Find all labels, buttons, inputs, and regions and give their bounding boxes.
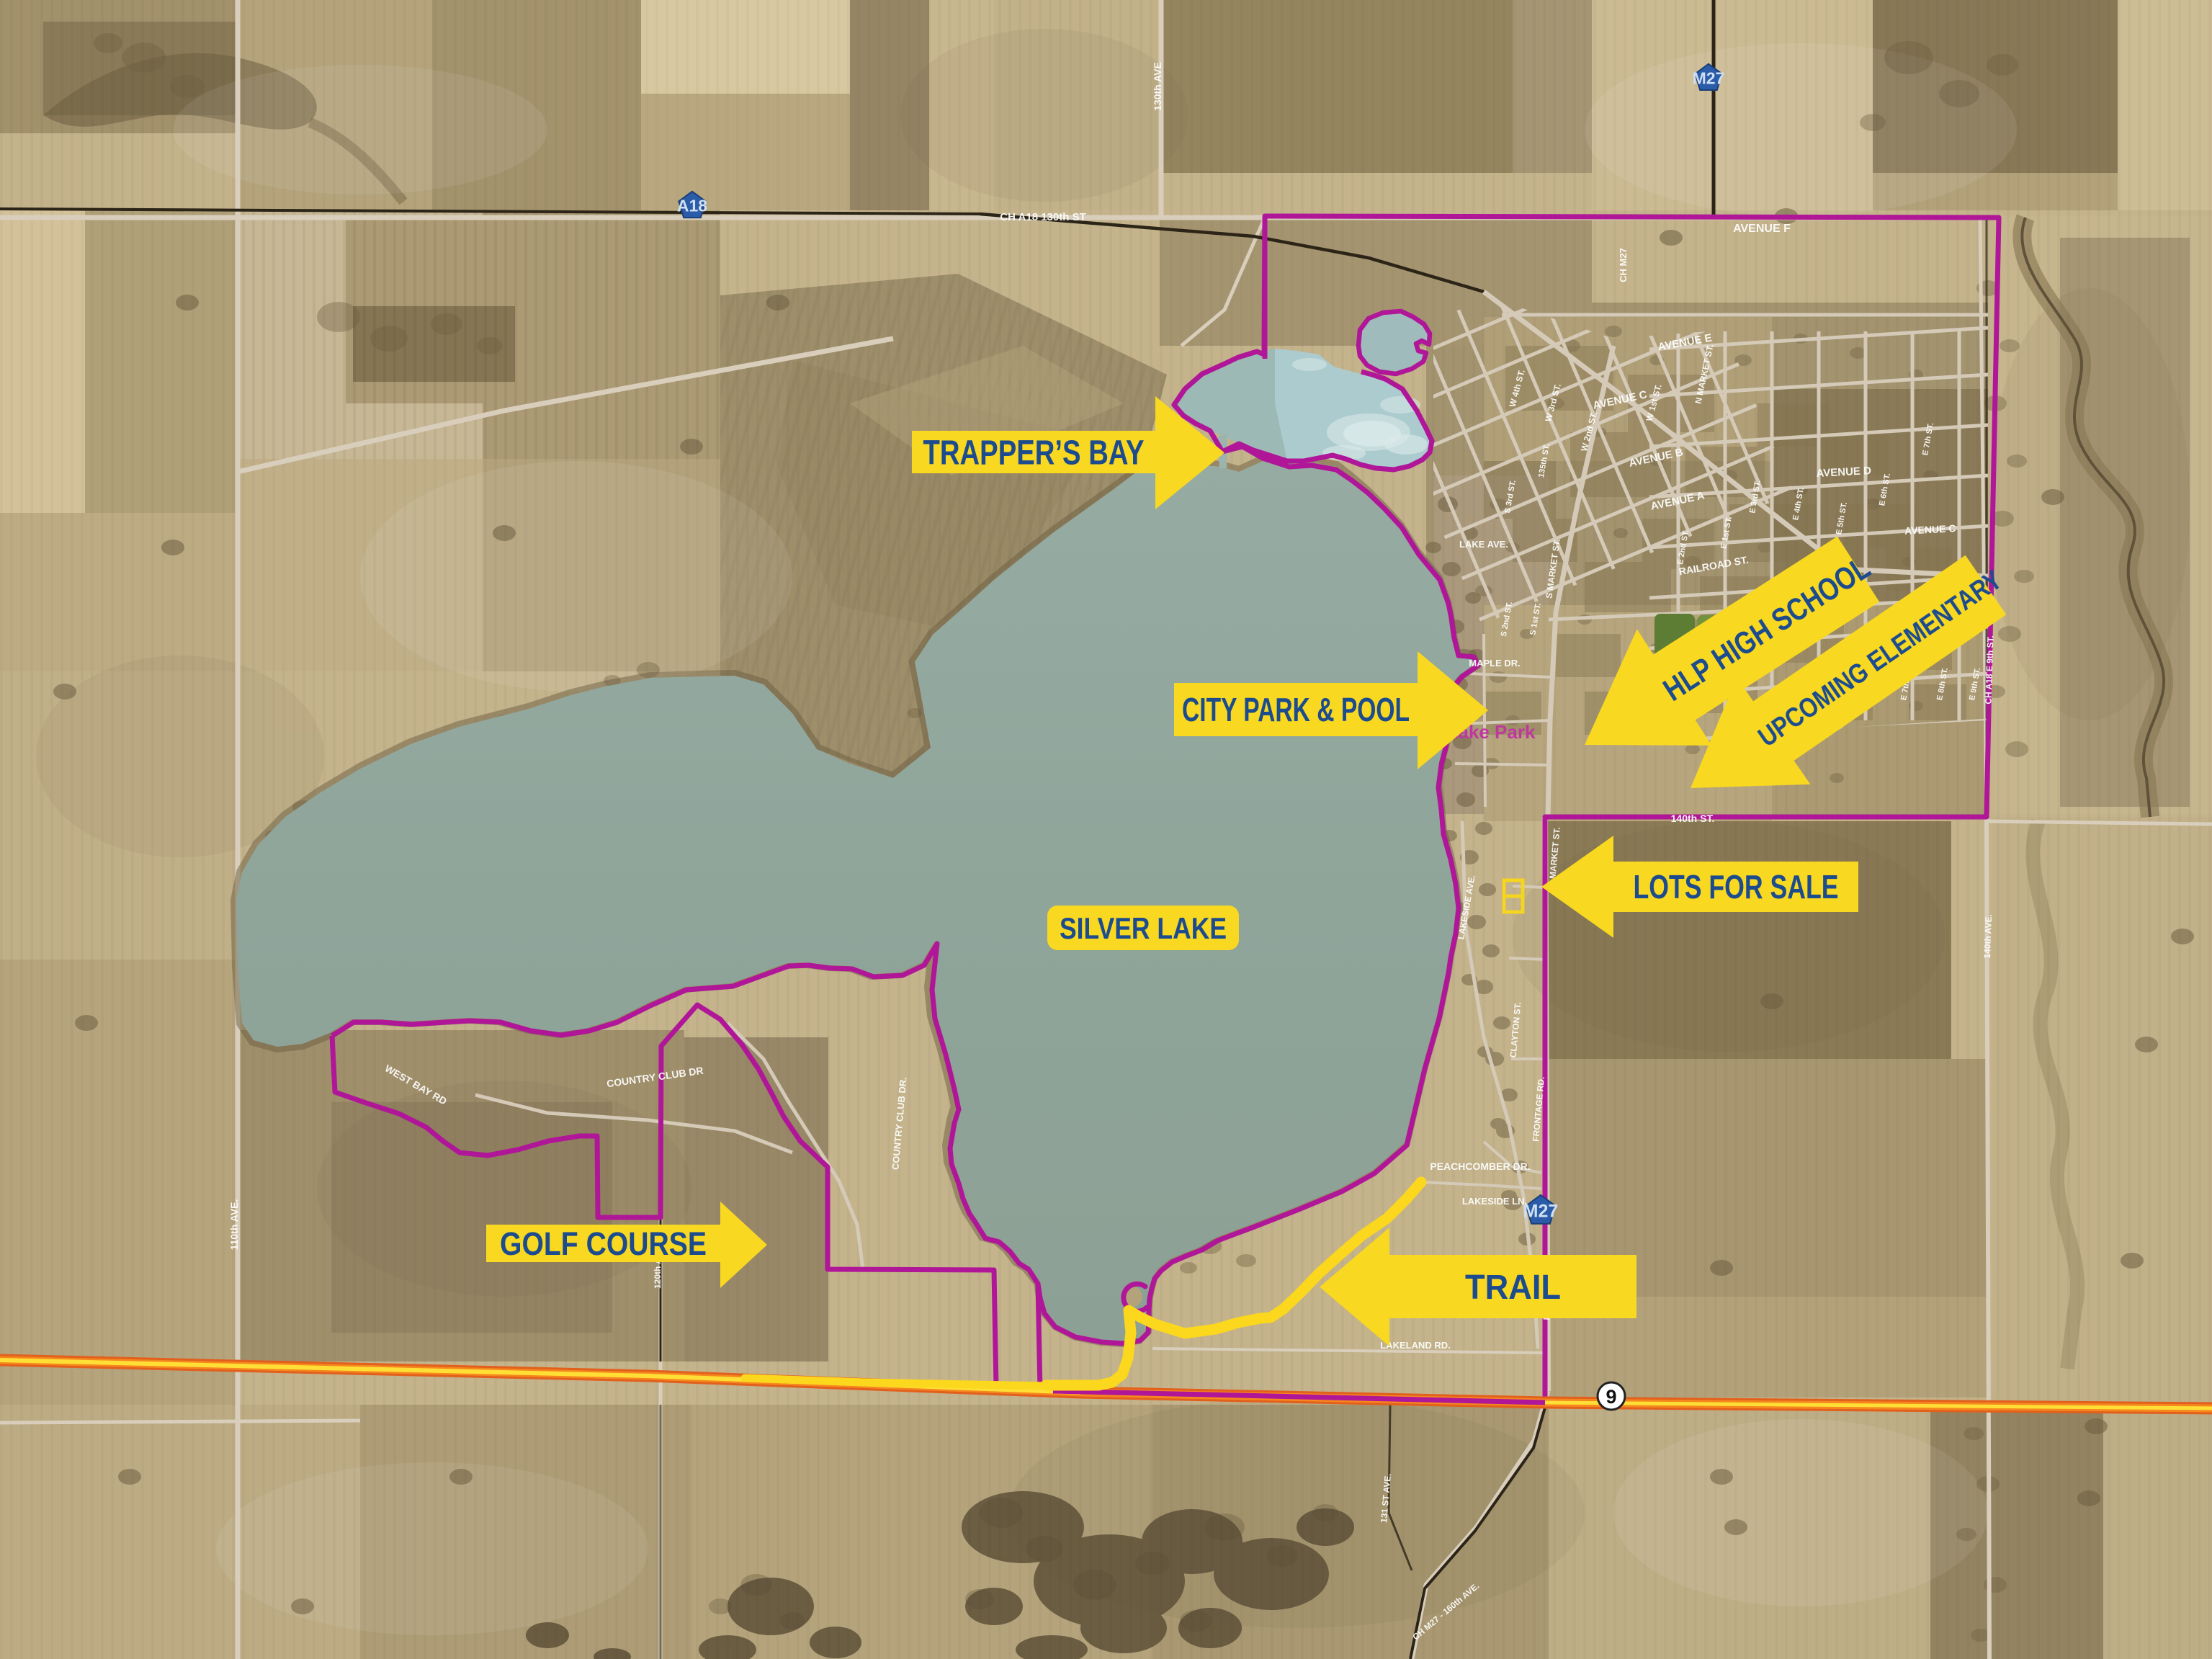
svg-text:SILVER LAKE: SILVER LAKE — [1060, 911, 1227, 945]
svg-text:MAPLE DR.: MAPLE DR. — [1469, 658, 1521, 668]
svg-text:LAKE AVE.: LAKE AVE. — [1459, 539, 1508, 550]
svg-text:PEACHCOMBER DR.: PEACHCOMBER DR. — [1430, 1161, 1530, 1172]
svg-text:A18: A18 — [677, 197, 707, 215]
svg-text:9: 9 — [1606, 1386, 1616, 1408]
svg-text:GOLF COURSE: GOLF COURSE — [500, 1225, 707, 1262]
svg-text:LAKESIDE LN.: LAKESIDE LN. — [1462, 1196, 1527, 1207]
svg-text:CITY PARK & POOL: CITY PARK & POOL — [1182, 691, 1410, 728]
svg-text:AVENUE F: AVENUE F — [1733, 223, 1791, 235]
svg-text:TRAIL: TRAIL — [1465, 1269, 1561, 1307]
svg-text:CH M27: CH M27 — [1618, 248, 1629, 282]
svg-text:M27: M27 — [1523, 1202, 1559, 1222]
svg-text:130th AVE: 130th AVE — [1152, 62, 1163, 111]
svg-text:140th AVE.: 140th AVE. — [1982, 914, 1994, 959]
svg-text:LOTS FOR SALE: LOTS FOR SALE — [1634, 868, 1839, 905]
svg-text:CH A18 130th ST: CH A18 130th ST — [1000, 211, 1085, 223]
svg-text:LAKELAND RD.: LAKELAND RD. — [1380, 1340, 1451, 1351]
svg-text:110th AVE.: 110th AVE. — [228, 1199, 240, 1251]
svg-text:M27: M27 — [1693, 69, 1725, 88]
svg-text:140th ST.: 140th ST. — [1671, 813, 1715, 824]
svg-text:TRAPPER’S BAY: TRAPPER’S BAY — [923, 434, 1145, 472]
